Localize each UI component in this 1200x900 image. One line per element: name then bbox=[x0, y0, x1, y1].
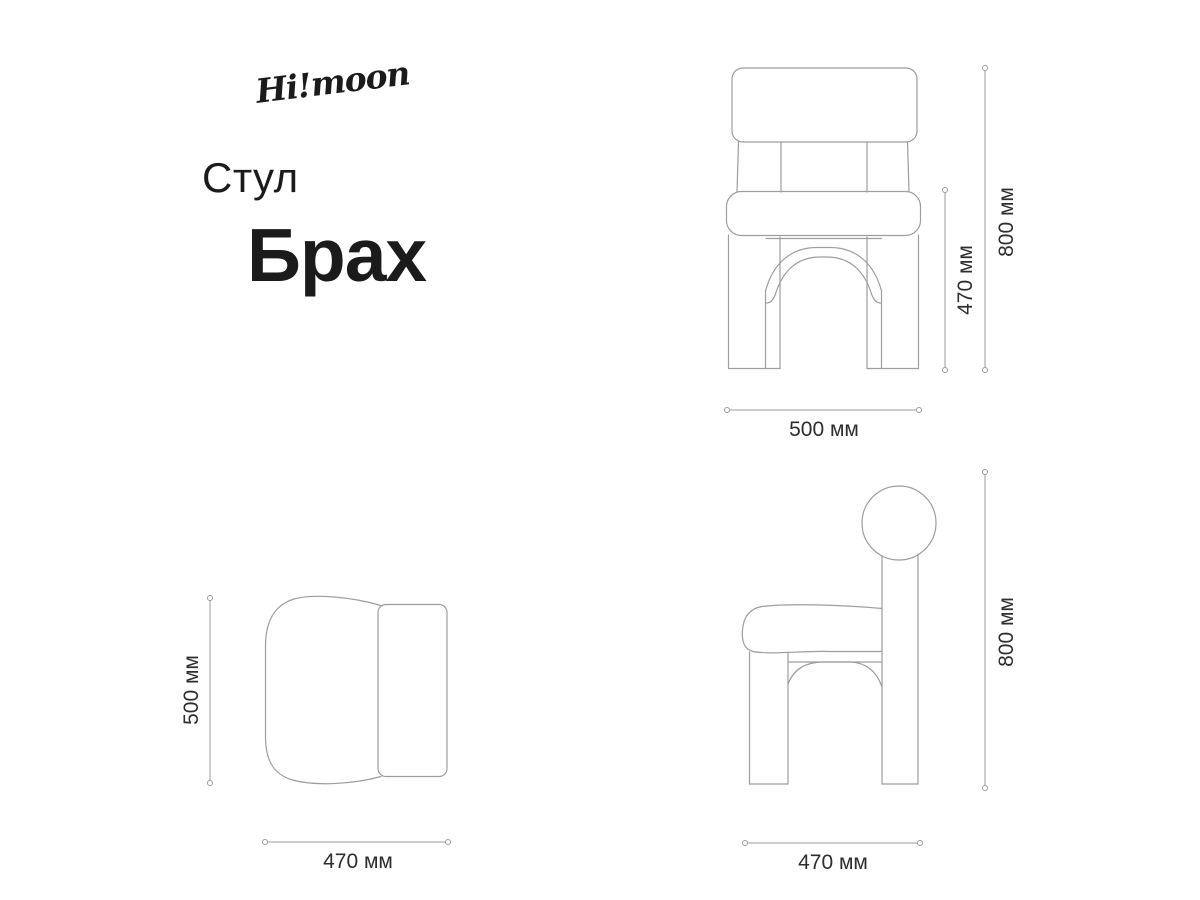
top-seat-outline bbox=[266, 596, 382, 783]
dimension-endpoint bbox=[208, 781, 213, 786]
top-view-dimensions bbox=[208, 596, 451, 845]
dimension-endpoint bbox=[208, 596, 213, 601]
front-arch-outer bbox=[766, 248, 882, 292]
front-post-right-outer bbox=[908, 142, 910, 192]
dimension-endpoint bbox=[983, 786, 988, 791]
front-post-left-outer bbox=[737, 142, 739, 192]
dimension-endpoint bbox=[943, 188, 948, 193]
top-backrest-outline bbox=[378, 605, 447, 777]
front-overall-width-label: 500 мм bbox=[789, 418, 859, 442]
front-seat bbox=[727, 192, 921, 236]
front-seat-height-label: 470 мм bbox=[954, 245, 978, 315]
dimension-endpoint bbox=[983, 66, 988, 71]
top-seat-width-label: 470 мм bbox=[323, 850, 393, 874]
dimension-endpoint bbox=[446, 840, 451, 845]
front-view-drawing bbox=[727, 68, 921, 369]
side-view-drawing bbox=[742, 486, 936, 784]
dimension-endpoint bbox=[983, 470, 988, 475]
front-arch-inner bbox=[767, 257, 881, 303]
side-arch bbox=[788, 662, 882, 687]
side-overall-height-label: 800 мм bbox=[995, 597, 1019, 667]
side-seat-profile bbox=[742, 605, 882, 653]
product-dimension-sheet: Hi!moon Стул Брах bbox=[0, 0, 1200, 900]
dimension-endpoint bbox=[918, 841, 923, 846]
dimension-endpoint bbox=[725, 408, 730, 413]
technical-drawing bbox=[0, 0, 1200, 900]
side-overall-depth-label: 470 мм bbox=[798, 851, 868, 875]
top-view-drawing bbox=[266, 596, 448, 783]
dimension-endpoint bbox=[917, 408, 922, 413]
dimension-endpoint bbox=[743, 841, 748, 846]
side-view-dimensions bbox=[743, 470, 988, 846]
top-seat-depth-label: 500 мм bbox=[180, 655, 204, 725]
side-backrest-ball bbox=[862, 486, 936, 560]
dimension-endpoint bbox=[983, 368, 988, 373]
front-overall-height-label: 800 мм bbox=[995, 187, 1019, 257]
dimension-endpoint bbox=[943, 368, 948, 373]
dimension-endpoint bbox=[263, 840, 268, 845]
front-backrest bbox=[732, 68, 917, 142]
